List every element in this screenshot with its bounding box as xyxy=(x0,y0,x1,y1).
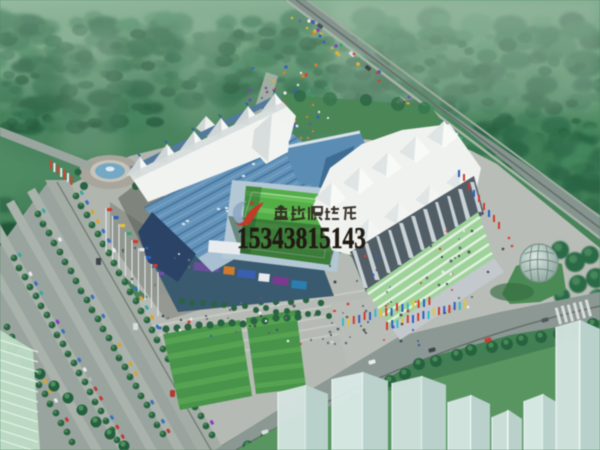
svg-text:15343815143: 15343815143 xyxy=(237,220,366,255)
